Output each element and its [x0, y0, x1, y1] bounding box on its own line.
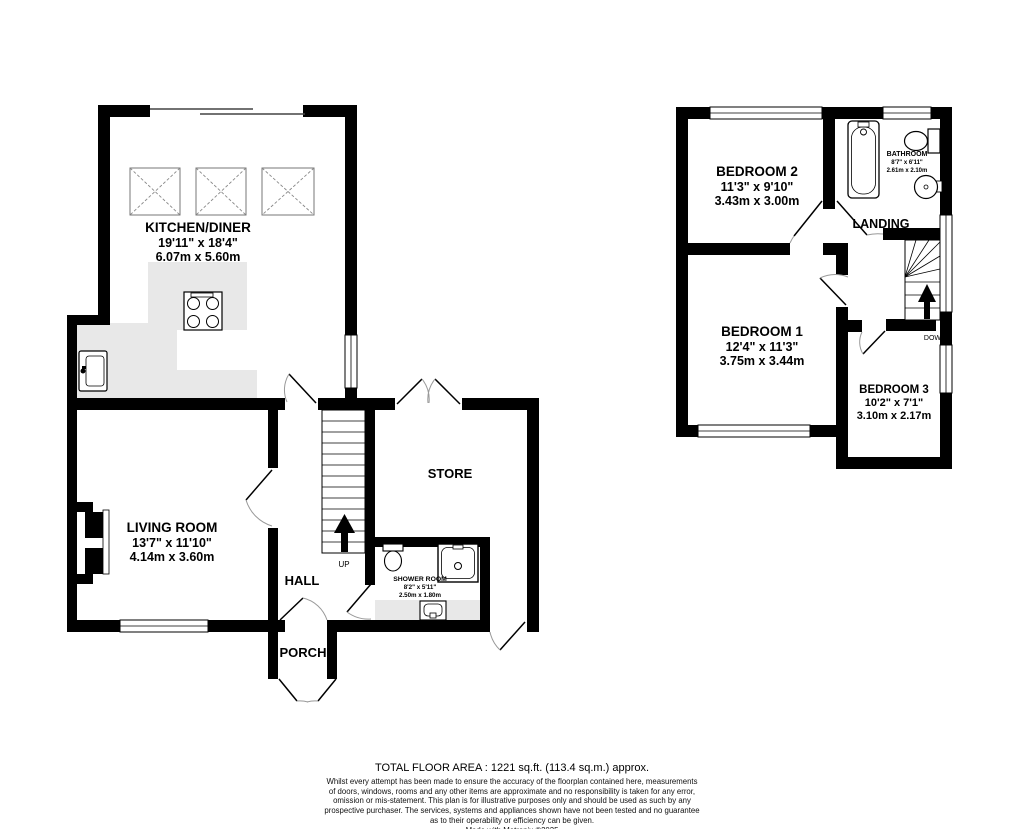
- stairs-up: [322, 410, 365, 553]
- store-label: STORE: [428, 466, 473, 481]
- kitchen-dims-imperial: 19'11" x 18'4": [158, 236, 238, 250]
- bedroom1-dims-metric: 3.75m x 3.44m: [720, 354, 805, 368]
- bathroom-label: BATHROOM: [887, 151, 928, 158]
- hall-label: HALL: [285, 573, 320, 588]
- up-label: UP: [338, 560, 349, 569]
- porch-label: PORCH: [280, 645, 327, 660]
- bedroom2-dims-imperial: 11'3" x 9'10": [721, 180, 794, 194]
- bedroom1-dims-imperial: 12'4" x 11'3": [726, 340, 799, 354]
- bedroom3-window: [940, 345, 952, 393]
- living-room-window: [120, 620, 208, 632]
- living-room-dims-imperial: 13'7" x 11'10": [132, 536, 212, 550]
- bedroom3-label: BEDROOM 3: [859, 384, 929, 396]
- bathroom-window: [883, 107, 931, 119]
- bedroom2-label: BEDROOM 2: [716, 164, 798, 179]
- kitchen-door: [284, 374, 316, 403]
- kitchen-sink-icon: [79, 351, 107, 391]
- living-room-door: [246, 470, 272, 526]
- shower-sink-icon: [420, 601, 446, 620]
- porch-entrance-doors: [279, 679, 336, 702]
- footer: TOTAL FLOOR AREA : 1221 sq.ft. (113.4 sq…: [0, 762, 1024, 829]
- disclaimer-line: as to their operability or efficiency ca…: [0, 816, 1024, 826]
- bedroom3-door: [860, 331, 885, 354]
- disclaimer-line: Whilst every attempt has been made to en…: [0, 777, 1024, 787]
- stairs-down: [905, 240, 940, 320]
- landing-label: LANDING: [853, 217, 910, 231]
- shower-room-dims-metric: 2.50m x 1.80m: [399, 592, 441, 599]
- hob-icon: [184, 292, 222, 330]
- store-double-doors: [397, 379, 460, 404]
- bedroom1-label: BEDROOM 1: [721, 324, 803, 339]
- bathtub-icon: [848, 121, 879, 198]
- store-exit-door: [490, 622, 525, 650]
- living-room-dims-metric: 4.14m x 3.60m: [130, 550, 215, 564]
- hall-porch-door: [280, 598, 327, 620]
- kitchen-dims-metric: 6.07m x 5.60m: [156, 250, 241, 264]
- shower-room-label: SHOWER ROOM: [393, 576, 447, 583]
- total-floor-area: TOTAL FLOOR AREA : 1221 sq.ft. (113.4 sq…: [0, 762, 1024, 774]
- kitchen-window: [345, 335, 357, 388]
- sliding-door-icon: [150, 109, 305, 114]
- shower-room-dims-imperial: 8'2" x 5'11": [404, 584, 437, 591]
- floorplan-svg: KITCHEN/DINER 19'11" x 18'4" 6.07m x 5.6…: [0, 0, 1024, 760]
- disclaimer-line: of doors, windows, rooms and any other i…: [0, 787, 1024, 797]
- bedroom3-dims-metric: 3.10m x 2.17m: [857, 410, 932, 422]
- bedroom3-dims-imperial: 10'2" x 7'1": [865, 397, 923, 409]
- bedroom1-door: [820, 275, 848, 305]
- first-floor: BEDROOM 2 11'3" x 9'10" 3.43m x 3.00m BA…: [676, 107, 952, 469]
- bedroom2-dims-metric: 3.43m x 3.00m: [715, 194, 800, 208]
- floorplan-page: KITCHEN/DINER 19'11" x 18'4" 6.07m x 5.6…: [0, 0, 1024, 829]
- skylight-icons: [130, 168, 314, 215]
- bathroom-sink-icon: [915, 176, 943, 199]
- bedroom2-window: [710, 107, 822, 119]
- ground-floor: KITCHEN/DINER 19'11" x 18'4" 6.07m x 5.6…: [67, 105, 539, 702]
- toilet-icon-first: [905, 129, 941, 153]
- kitchen-label: KITCHEN/DINER: [145, 220, 251, 235]
- landing-window: [940, 215, 952, 312]
- bathroom-dims-imperial: 8'7" x 6'11": [891, 160, 923, 166]
- down-label: DOWN: [924, 335, 946, 342]
- bedroom1-window: [698, 425, 810, 437]
- shower-room-door: [347, 584, 371, 619]
- toilet-icon-ground: [383, 544, 403, 571]
- bathroom-dims-metric: 2.61m x 2.10m: [887, 168, 928, 174]
- disclaimer-line: prospective purchaser. The services, sys…: [0, 806, 1024, 816]
- living-room-label: LIVING ROOM: [127, 520, 218, 535]
- disclaimer-line: omission or mis-statement. This plan is …: [0, 796, 1024, 806]
